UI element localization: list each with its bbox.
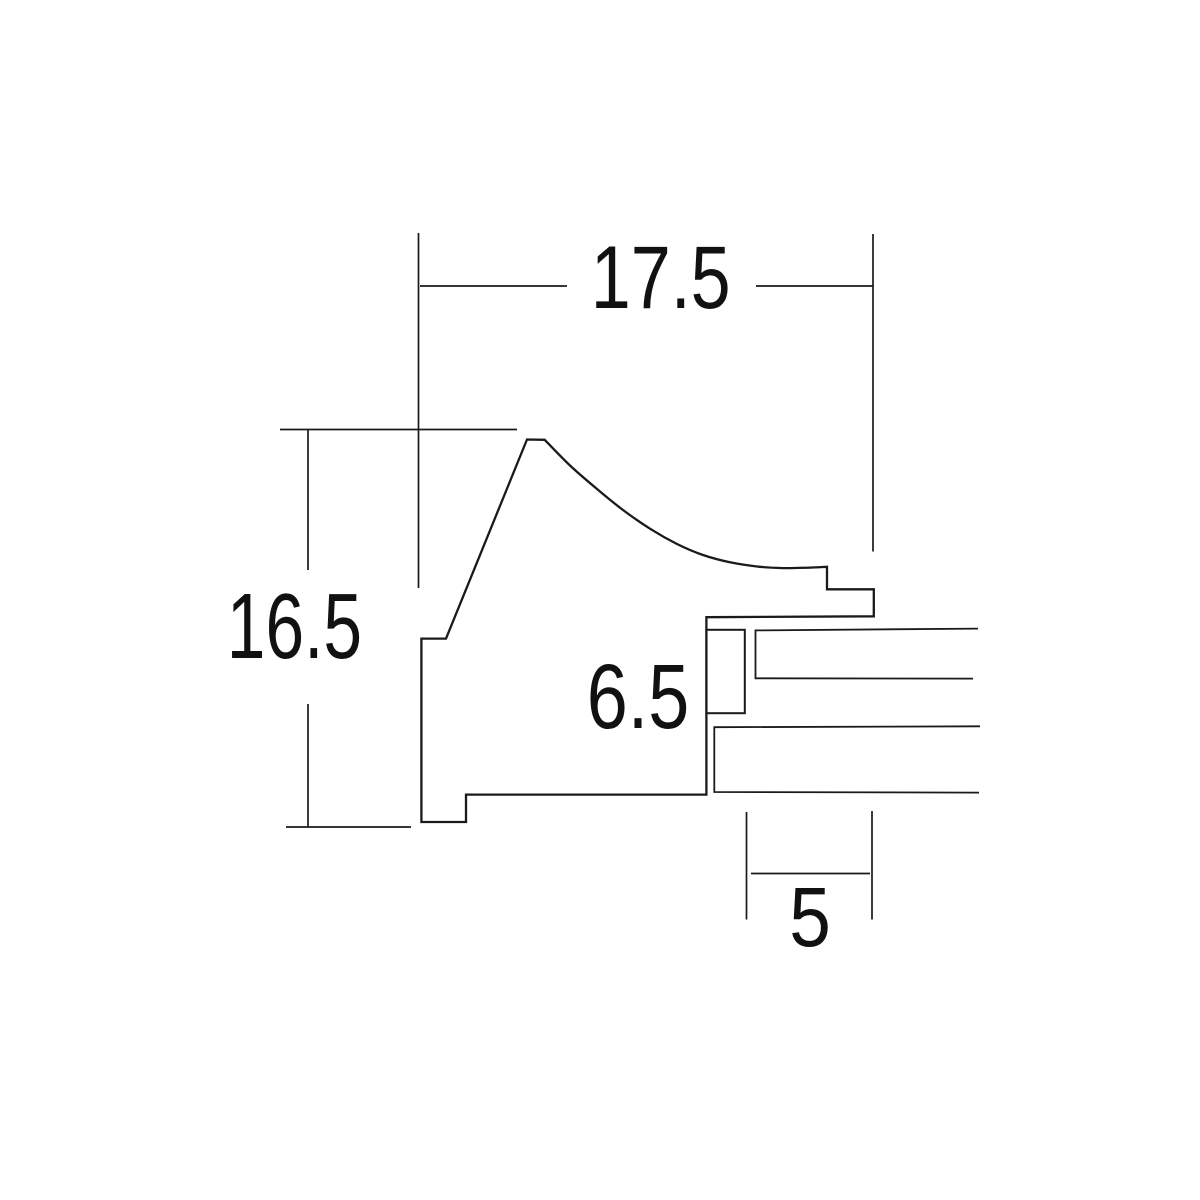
svg-text:5: 5 [789,870,831,964]
svg-text:6.5: 6.5 [587,646,690,748]
svg-text:17.5: 17.5 [591,227,731,327]
svg-text:16.5: 16.5 [227,574,362,678]
